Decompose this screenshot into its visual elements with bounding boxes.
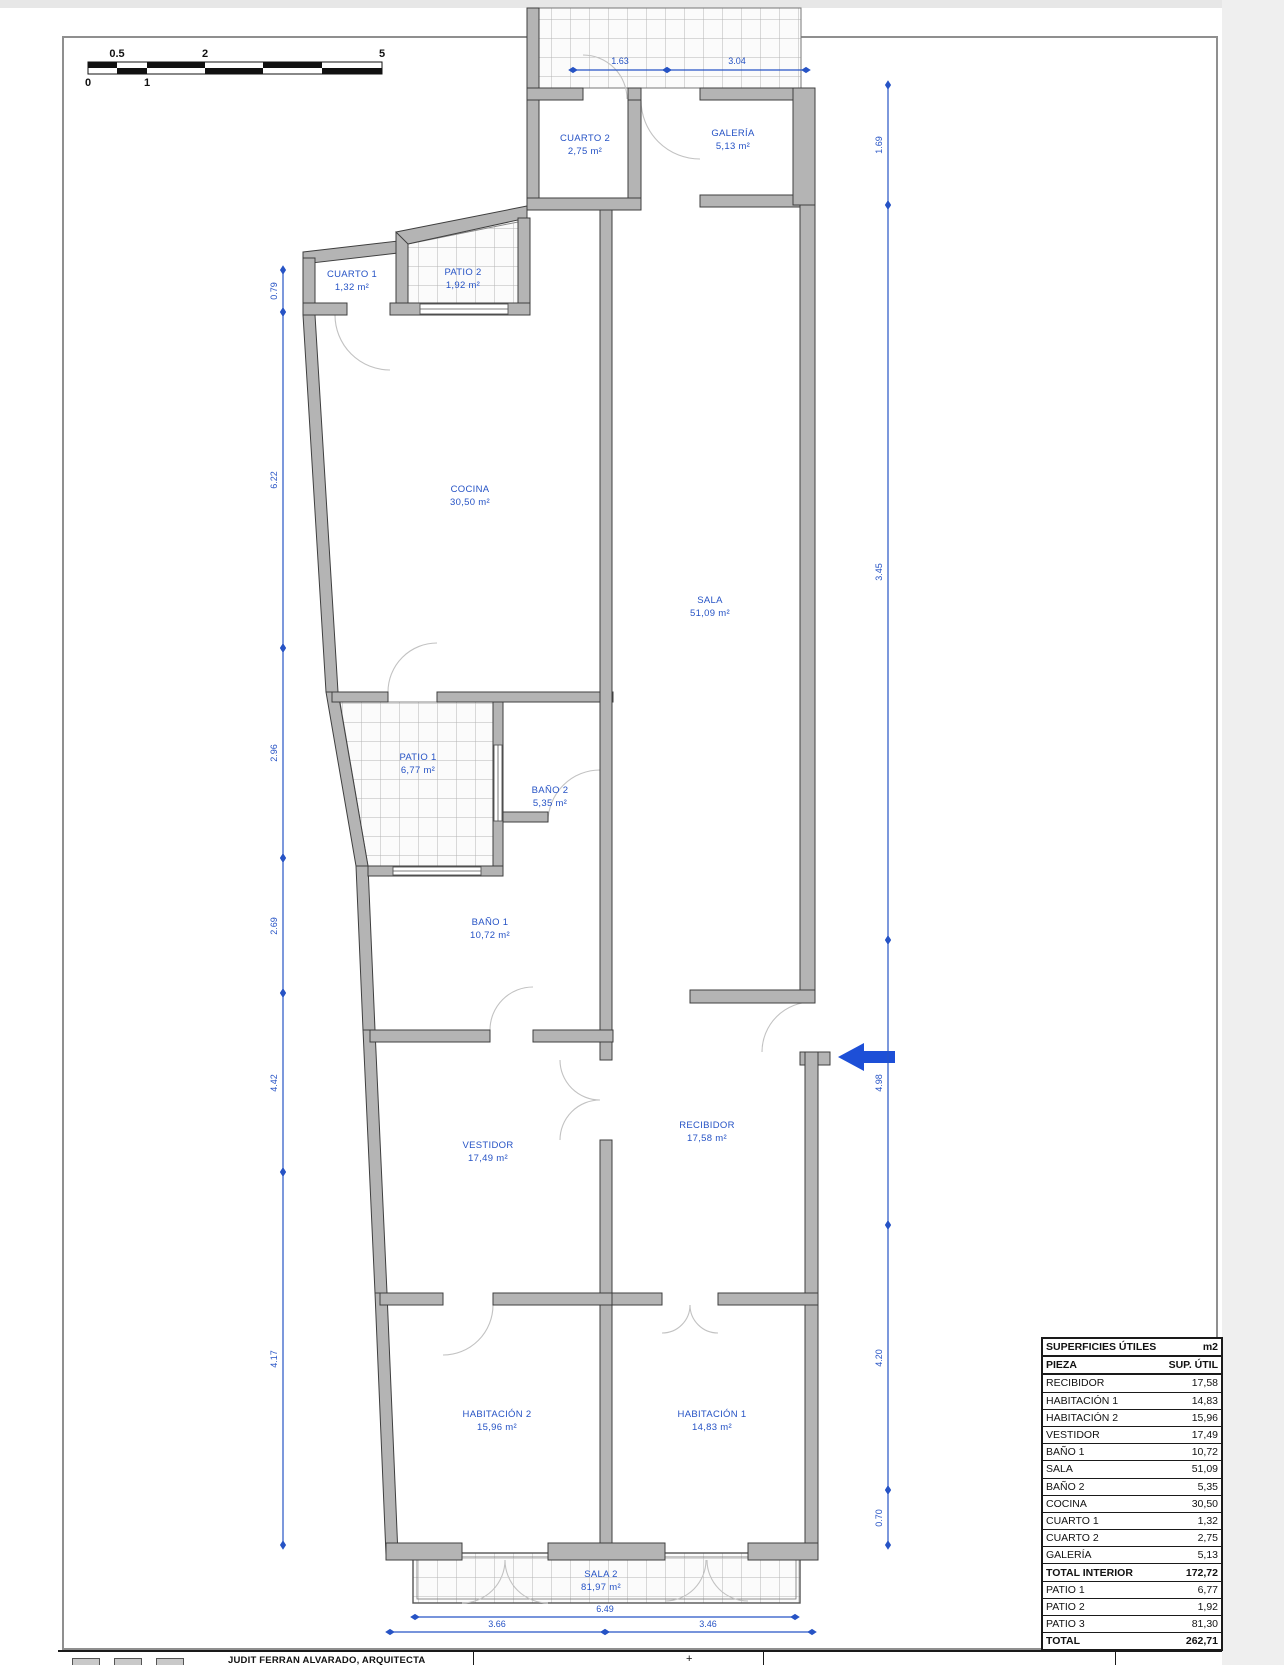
room-label-bano-2: BAÑO 2 [532, 785, 569, 796]
room-label-cocina: COCINA [451, 484, 490, 495]
door-arc [388, 643, 437, 692]
room-label-sala-2: SALA 2 [584, 1569, 618, 1580]
patio-3-top-terrace [535, 8, 801, 88]
dim-label: 3.66 [488, 1619, 506, 1629]
room-area-bano-2: 5,35 m² [533, 798, 567, 809]
table-row: BAÑO 25,35 [1043, 1478, 1221, 1495]
entrance-door-arc [762, 1002, 812, 1052]
table-row: HABITACIÓN 114,83 [1043, 1392, 1221, 1409]
title-block-divider [473, 1652, 474, 1665]
table-header-row: PIEZA SUP. ÚTIL [1043, 1356, 1221, 1374]
room-label-cuarto-1: CUARTO 1 [327, 269, 377, 280]
room-area-sala: 51,09 m² [690, 608, 730, 619]
room-label-vestidor: VESTIDOR [463, 1140, 514, 1151]
dim-label: 4.98 [874, 1074, 884, 1092]
table-row: VESTIDOR17,49 [1043, 1426, 1221, 1443]
room-area-recibidor: 17,58 m² [687, 1133, 727, 1144]
title-block-logo [72, 1658, 100, 1665]
table-row: PATIO 21,92 [1043, 1598, 1221, 1615]
room-area-bano-1: 10,72 m² [470, 930, 510, 941]
door-arc [560, 1060, 600, 1100]
col-sup-util: SUP. ÚTIL [1169, 1359, 1218, 1371]
scale-bar: 0.5 2 5 0 1 [85, 48, 385, 89]
title-block-divider [763, 1652, 764, 1665]
areas-table: SUPERFICIES ÚTILES m2 PIEZA SUP. ÚTIL RE… [1041, 1337, 1223, 1651]
room-label-recibidor: RECIBIDOR [679, 1120, 734, 1131]
dim-label: 3.04 [728, 56, 746, 66]
scale-label: 0 [85, 77, 91, 89]
table-unit: m2 [1203, 1341, 1218, 1353]
room-label-patio-1: PATIO 1 [399, 752, 436, 763]
dim-label: 4.20 [874, 1349, 884, 1367]
dim-label: 1.69 [874, 136, 884, 154]
dim-label: 3.45 [874, 563, 884, 581]
table-title-row: SUPERFICIES ÚTILES m2 [1043, 1339, 1221, 1356]
table-row: RECIBIDOR17,58 [1043, 1374, 1221, 1391]
room-area-patio-1: 6,77 m² [401, 765, 435, 776]
room-label-sala: SALA [697, 595, 723, 606]
door-arc [490, 987, 533, 1030]
dim-label: 6.49 [596, 1604, 614, 1614]
table-row: GALERÍA5,13 [1043, 1546, 1221, 1563]
dim-label: 2.69 [269, 917, 279, 935]
title-block: JUDIT FERRAN ALVARADO, ARQUITECTA + [58, 1650, 1222, 1665]
scale-label: 1 [144, 77, 150, 89]
door-arc [690, 1305, 718, 1333]
col-pieza: PIEZA [1046, 1359, 1077, 1371]
table-row: BAÑO 110,72 [1043, 1443, 1221, 1460]
dim-label: 6.22 [269, 471, 279, 489]
room-label-habitacion-2: HABITACIÓN 2 [463, 1409, 532, 1420]
room-area-galeria: 5,13 m² [716, 141, 750, 152]
entrance-arrow [838, 1043, 895, 1071]
dim-label: 4.42 [269, 1074, 279, 1092]
room-area-habitacion-1: 14,83 m² [692, 1422, 732, 1433]
table-row-total: TOTAL262,71 [1043, 1632, 1221, 1649]
title-block-plus-mark: + [686, 1653, 692, 1665]
architect-name: JUDIT FERRAN ALVARADO, ARQUITECTA [228, 1655, 425, 1665]
dim-label: 0.79 [269, 282, 279, 300]
title-block-logo [156, 1658, 184, 1665]
room-area-cuarto-2: 2,75 m² [568, 146, 602, 157]
table-row: SALA51,09 [1043, 1460, 1221, 1477]
room-area-cuarto-1: 1,32 m² [335, 282, 369, 293]
door-arc [662, 1305, 690, 1333]
room-label-habitacion-1: HABITACIÓN 1 [678, 1409, 747, 1420]
door-arc [335, 315, 390, 370]
table-row: PATIO 381,30 [1043, 1615, 1221, 1632]
table-row: CUARTO 22,75 [1043, 1529, 1221, 1546]
table-row: PATIO 16,77 [1043, 1581, 1221, 1598]
title-block-divider [1115, 1652, 1116, 1665]
floor-plan-sheet: 0.5 2 5 0 1 [0, 0, 1284, 1665]
tiled-areas [340, 8, 801, 1603]
scale-label: 0.5 [109, 48, 124, 60]
dim-label: 3.46 [699, 1619, 717, 1629]
room-label-cuarto-2: CUARTO 2 [560, 133, 610, 144]
dim-label: 0.70 [874, 1509, 884, 1527]
dim-label: 1.63 [611, 56, 629, 66]
table-row: CUARTO 11,32 [1043, 1512, 1221, 1529]
title-block-logo [114, 1658, 142, 1665]
room-label-patio-2: PATIO 2 [444, 267, 481, 278]
dim-label: 4.17 [269, 1350, 279, 1368]
room-label-bano-1: BAÑO 1 [472, 917, 509, 928]
room-area-cocina: 30,50 m² [450, 497, 490, 508]
door-arc [641, 100, 700, 159]
scale-label: 5 [379, 48, 385, 60]
door-arc [443, 1305, 493, 1355]
room-area-sala-2: 81,97 m² [581, 1582, 621, 1593]
table-row: HABITACIÓN 215,96 [1043, 1409, 1221, 1426]
table-row: COCINA30,50 [1043, 1495, 1221, 1512]
table-row-total-interior: TOTAL INTERIOR172,72 [1043, 1563, 1221, 1580]
room-label-galeria: GALERÍA [711, 128, 755, 139]
table-title: SUPERFICIES ÚTILES [1046, 1341, 1156, 1353]
room-area-vestidor: 17,49 m² [468, 1153, 508, 1164]
room-area-patio-2: 1,92 m² [446, 280, 480, 291]
room-area-habitacion-2: 15,96 m² [477, 1422, 517, 1433]
scale-label: 2 [202, 48, 208, 60]
door-arc [548, 770, 600, 822]
dim-label: 2.96 [269, 744, 279, 762]
door-arc [560, 1100, 600, 1140]
